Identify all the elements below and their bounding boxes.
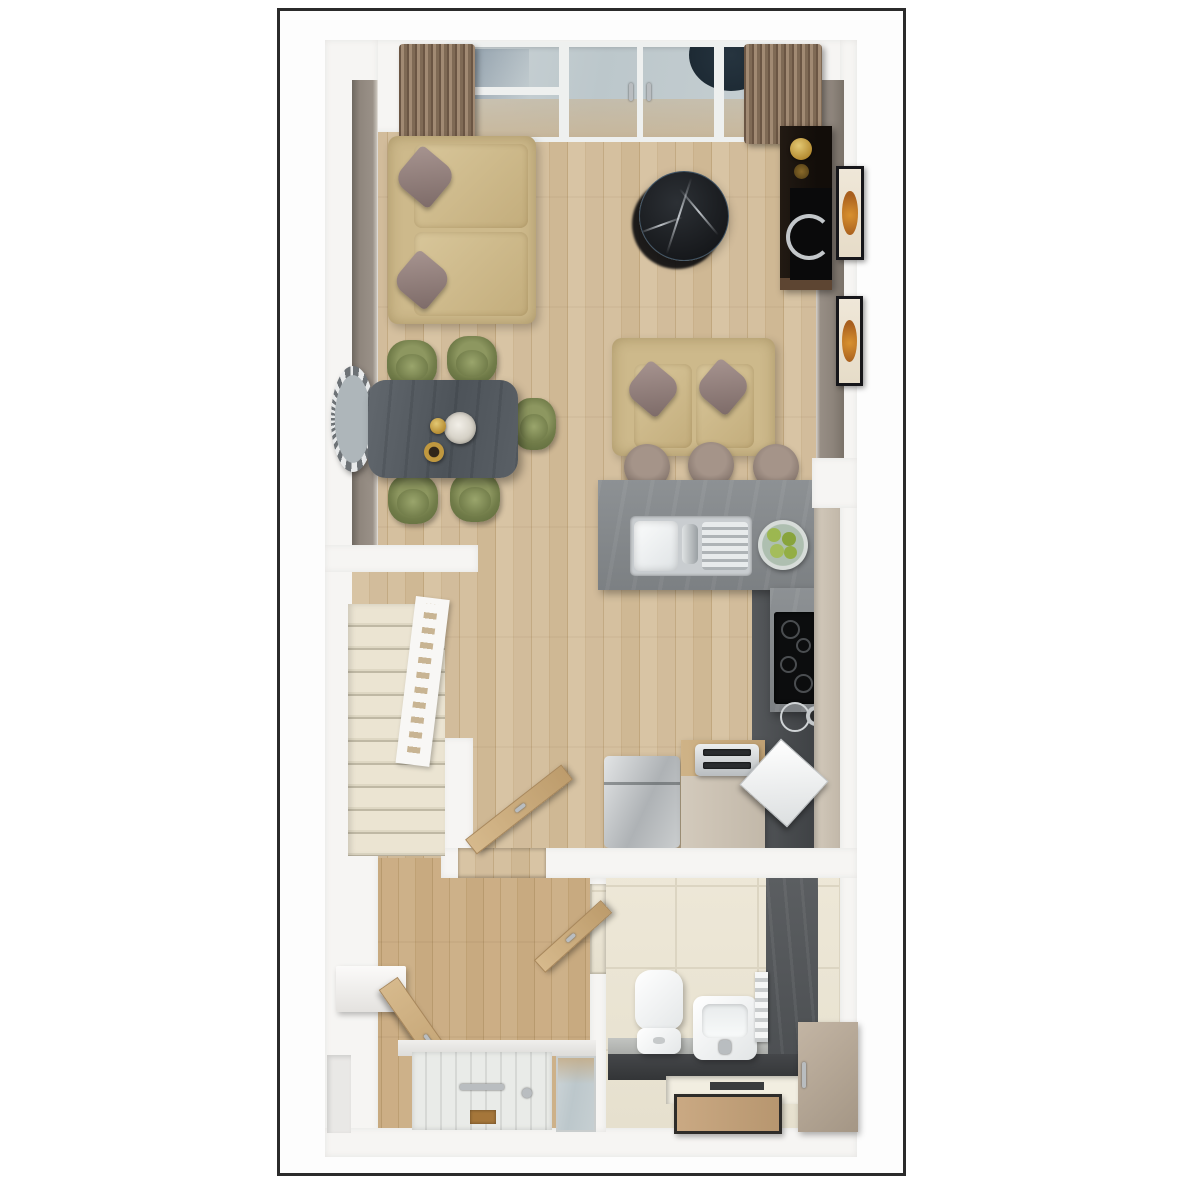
- floor-plan-image: [0, 0, 1200, 1200]
- dining-table: [368, 380, 518, 478]
- sofa-centre: [612, 338, 775, 456]
- tv-stand-ring: [786, 214, 832, 260]
- wall-picture: [836, 296, 863, 386]
- fridge: [604, 756, 680, 848]
- wall-column-right: [812, 458, 857, 508]
- basin-tap: [719, 1040, 731, 1054]
- apples: [782, 532, 796, 546]
- fruit-bowl: [758, 520, 808, 570]
- dining-chair: [450, 472, 500, 522]
- doorway-living-hall: [458, 848, 546, 878]
- front-door-handle: [522, 1088, 532, 1098]
- curtain-left: [399, 44, 475, 144]
- door-handle: [629, 83, 633, 101]
- sink-unit: [630, 516, 752, 576]
- gold-vase: [430, 418, 446, 434]
- dining-chair: [512, 398, 556, 450]
- sofa-left: [388, 136, 536, 324]
- apples: [784, 546, 797, 559]
- bathroom-cabinet: [798, 1022, 858, 1132]
- table-lamp-base: [794, 164, 809, 179]
- tv-media-unit: [780, 126, 832, 290]
- letter-plate: [460, 1084, 504, 1090]
- door-leaf-split: [637, 47, 643, 137]
- sink-faucet: [682, 524, 698, 564]
- wall-left-inner-face: [352, 80, 378, 548]
- wall-dining-stairs: [325, 545, 478, 572]
- toilet-cistern: [637, 1028, 681, 1054]
- wooden-mat: [674, 1094, 782, 1134]
- hydrangea-decor: [444, 412, 476, 444]
- gold-tealight: [424, 442, 444, 462]
- induction-hob: [774, 612, 816, 704]
- apples: [770, 544, 784, 558]
- kitchen-island: [598, 480, 820, 590]
- towel-rail: [755, 972, 768, 1042]
- apples: [767, 528, 781, 542]
- dining-chair: [388, 474, 438, 524]
- wall-picture: [836, 166, 864, 260]
- tall-cabinet-run: [814, 505, 840, 853]
- door-handle: [647, 83, 651, 101]
- dining-chair: [447, 336, 497, 384]
- door-mat-detail: [470, 1110, 496, 1124]
- front-door-side-panel: [556, 1056, 596, 1132]
- window-mullion: [714, 47, 724, 137]
- sink-drainer: [702, 522, 748, 570]
- coffee-table: [639, 171, 729, 261]
- wall-left-niche: [327, 1055, 351, 1133]
- sink-basin: [634, 521, 678, 571]
- table-lamp: [790, 138, 812, 160]
- toilet: [635, 970, 683, 1030]
- front-door: [412, 1052, 552, 1130]
- glass-wood-reflection: [451, 99, 781, 137]
- toaster: [695, 744, 759, 776]
- wash-basin: [693, 996, 757, 1060]
- patio-doors-glazing: [446, 42, 786, 142]
- window-mullion: [559, 47, 569, 137]
